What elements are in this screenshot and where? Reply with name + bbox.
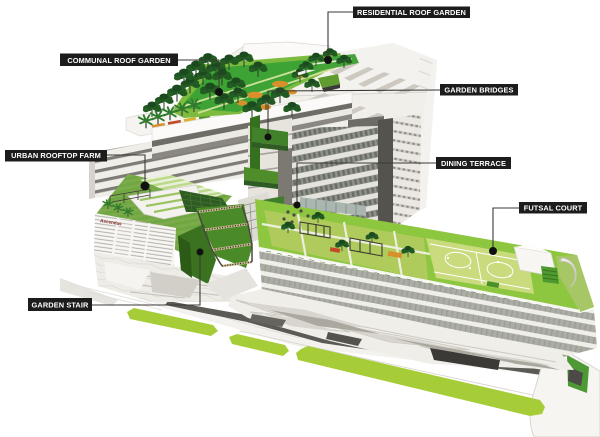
svg-text:GARDEN BRIDGES: GARDEN BRIDGES: [444, 86, 513, 95]
svg-text:DINING TERRACE: DINING TERRACE: [441, 159, 506, 168]
svg-text:RESIDENTIAL ROOF GARDEN: RESIDENTIAL ROOF GARDEN: [357, 8, 466, 17]
svg-text:FUTSAL COURT: FUTSAL COURT: [524, 204, 583, 213]
svg-text:GARDEN STAIR: GARDEN STAIR: [32, 301, 89, 310]
svg-text:COMMUNAL ROOF GARDEN: COMMUNAL ROOF GARDEN: [67, 56, 170, 65]
svg-text:URBAN ROOFTOP FARM: URBAN ROOFTOP FARM: [11, 151, 101, 160]
